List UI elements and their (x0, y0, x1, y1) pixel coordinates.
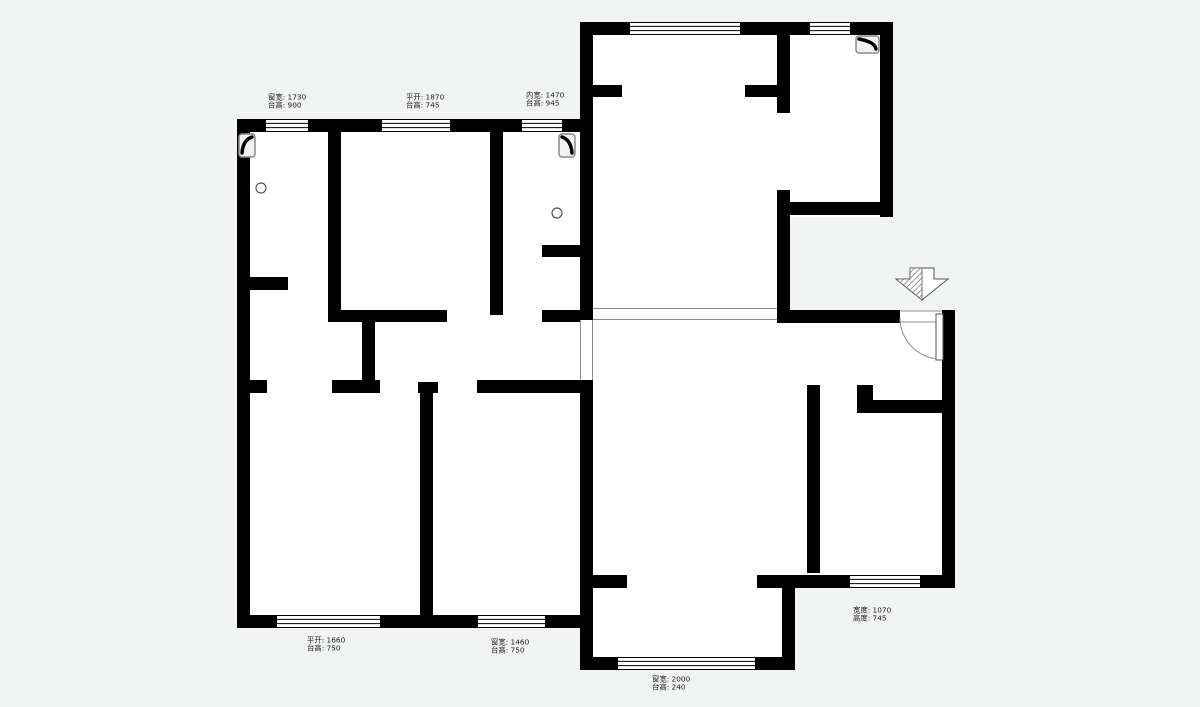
window-symbol (478, 615, 545, 628)
wall-segment (237, 119, 250, 628)
wall-segment (490, 132, 503, 315)
entrance-arrow-hatch (896, 268, 922, 300)
window-symbol (522, 119, 562, 132)
window-symbol (266, 119, 308, 132)
ceiling-fixture-circle (552, 208, 562, 218)
ceiling-fixture-circle (256, 183, 266, 193)
window-symbol (618, 657, 755, 670)
wall-segment (418, 382, 438, 393)
floor-area (580, 217, 790, 320)
wall-segment (580, 22, 593, 132)
wall-segment (237, 277, 288, 290)
wall-segment (237, 380, 267, 393)
opening-fill (580, 320, 593, 380)
window-symbol (850, 575, 920, 588)
window-symbol (382, 119, 450, 132)
wall-segment (873, 400, 955, 413)
floor-plan-svg (0, 0, 1200, 707)
window-symbol (630, 22, 740, 35)
wall-segment (328, 132, 341, 312)
wall-segment (757, 575, 795, 588)
wall-segment (328, 310, 447, 322)
wall-segment (580, 132, 593, 320)
floor-area (237, 119, 593, 628)
wall-segment (580, 380, 593, 670)
floor-area (580, 380, 795, 670)
opening-fill (593, 308, 777, 320)
window-symbol (277, 615, 380, 628)
floor-plan-canvas: 窗宽: 1730台高: 900平开: 1870台高: 745内宽: 1470台高… (0, 0, 1200, 707)
wall-segment (362, 322, 375, 380)
wall-segment (593, 85, 622, 97)
wall-segment (857, 385, 873, 413)
wall-segment (942, 310, 955, 588)
wall-segment (542, 245, 580, 257)
wall-segment (777, 310, 900, 323)
wall-segment (745, 85, 777, 97)
window-symbol (810, 22, 850, 35)
entrance-door-leaf (936, 314, 943, 360)
wall-segment (807, 385, 820, 573)
wall-segment (777, 35, 790, 113)
wall-segment (593, 575, 627, 588)
floor-area (580, 22, 893, 217)
wall-segment (880, 22, 893, 217)
wall-segment (420, 393, 433, 615)
wall-segment (332, 380, 380, 393)
wall-segment (777, 190, 790, 323)
wall-segment (782, 588, 795, 670)
wall-segment (790, 202, 893, 215)
wall-segment (477, 380, 593, 393)
